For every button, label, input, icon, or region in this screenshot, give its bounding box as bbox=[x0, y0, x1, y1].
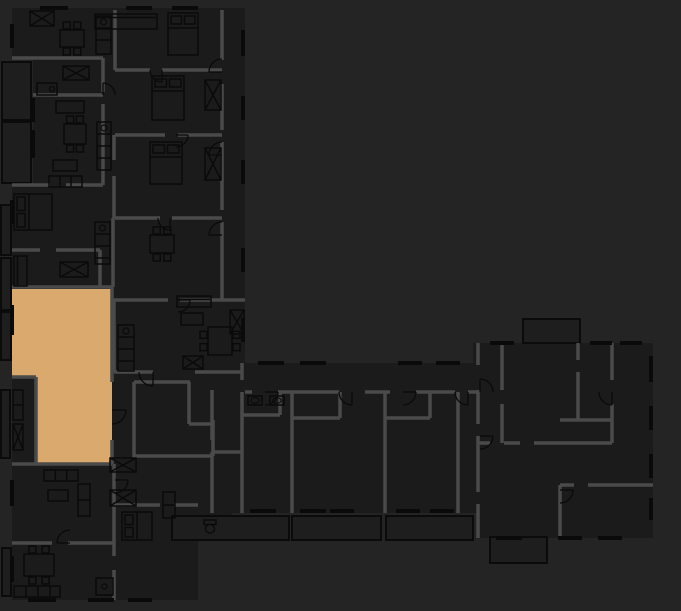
window bbox=[10, 480, 14, 506]
window bbox=[598, 536, 622, 540]
balcony bbox=[386, 516, 473, 540]
balcony bbox=[2, 122, 31, 183]
window bbox=[496, 536, 522, 540]
window bbox=[31, 130, 35, 158]
window bbox=[649, 498, 653, 520]
window bbox=[40, 6, 68, 10]
balcony bbox=[1, 258, 11, 310]
window bbox=[430, 509, 454, 513]
floor-plan-viewer bbox=[0, 0, 681, 611]
window bbox=[126, 6, 152, 10]
window bbox=[10, 556, 14, 582]
balcony bbox=[172, 516, 289, 540]
window bbox=[10, 305, 14, 335]
balcony bbox=[2, 548, 11, 596]
window bbox=[10, 24, 14, 48]
balcony bbox=[2, 62, 31, 120]
floor-plan-svg bbox=[0, 0, 681, 611]
window bbox=[241, 160, 245, 184]
window bbox=[250, 509, 276, 513]
window bbox=[436, 361, 460, 365]
window bbox=[241, 96, 245, 120]
balcony bbox=[292, 516, 381, 540]
balcony bbox=[523, 319, 580, 343]
window bbox=[558, 536, 582, 540]
window bbox=[28, 598, 56, 602]
window bbox=[620, 341, 642, 345]
window bbox=[172, 6, 198, 10]
window bbox=[590, 341, 612, 345]
balcony bbox=[1, 390, 10, 458]
balcony bbox=[490, 537, 547, 563]
window bbox=[241, 248, 245, 272]
window bbox=[31, 98, 35, 122]
window bbox=[649, 406, 653, 430]
window bbox=[300, 361, 326, 365]
window bbox=[330, 509, 354, 513]
window bbox=[128, 598, 152, 602]
window bbox=[649, 454, 653, 478]
window bbox=[300, 509, 326, 513]
window bbox=[258, 361, 284, 365]
window bbox=[649, 356, 653, 382]
window bbox=[88, 598, 114, 602]
window bbox=[396, 509, 420, 513]
window bbox=[490, 341, 514, 345]
balcony bbox=[1, 205, 11, 255]
balcony bbox=[1, 312, 11, 360]
window bbox=[398, 361, 422, 365]
window bbox=[241, 30, 245, 56]
